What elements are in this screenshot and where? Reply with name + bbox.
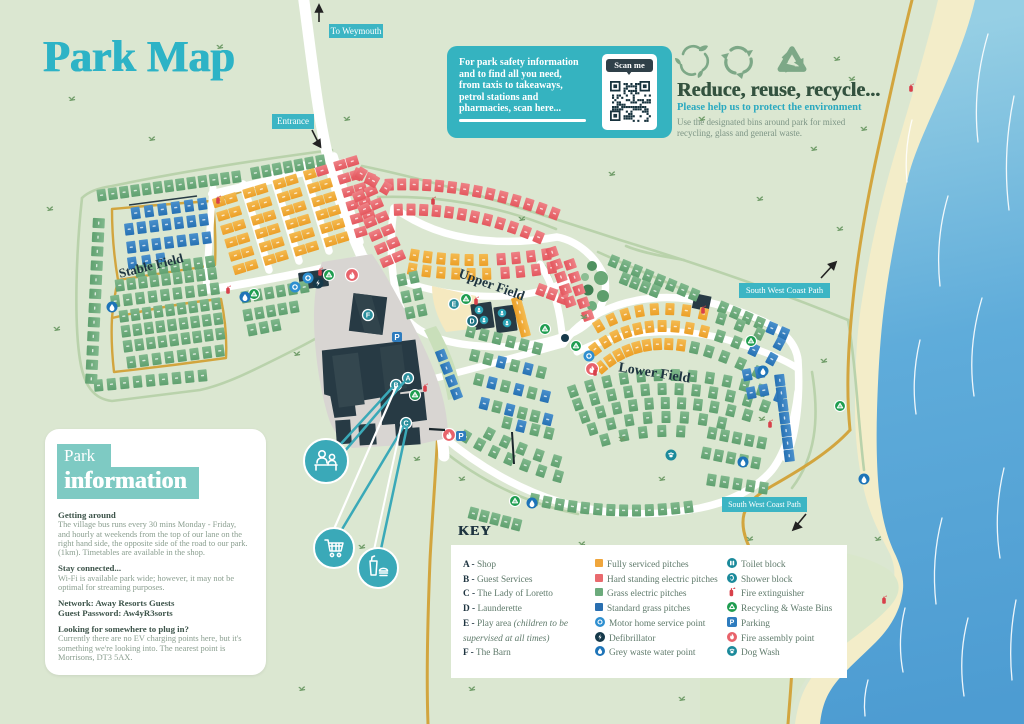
svg-text:P: P xyxy=(730,619,735,626)
